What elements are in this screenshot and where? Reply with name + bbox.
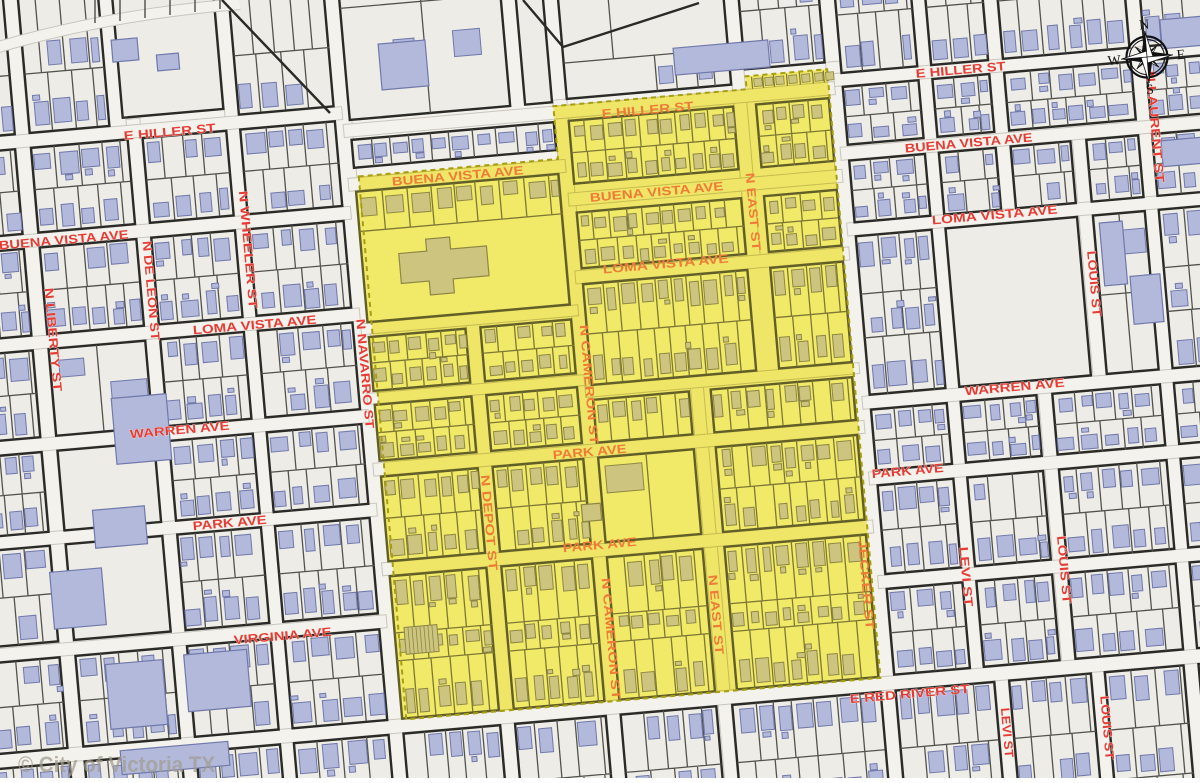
svg-text:N: N bbox=[1139, 18, 1150, 34]
svg-text:W: W bbox=[1107, 53, 1122, 69]
svg-text:© City of Victoria TX: © City of Victoria TX bbox=[18, 752, 215, 777]
svg-text:S: S bbox=[1145, 83, 1154, 99]
svg-text:E: E bbox=[1176, 48, 1186, 64]
